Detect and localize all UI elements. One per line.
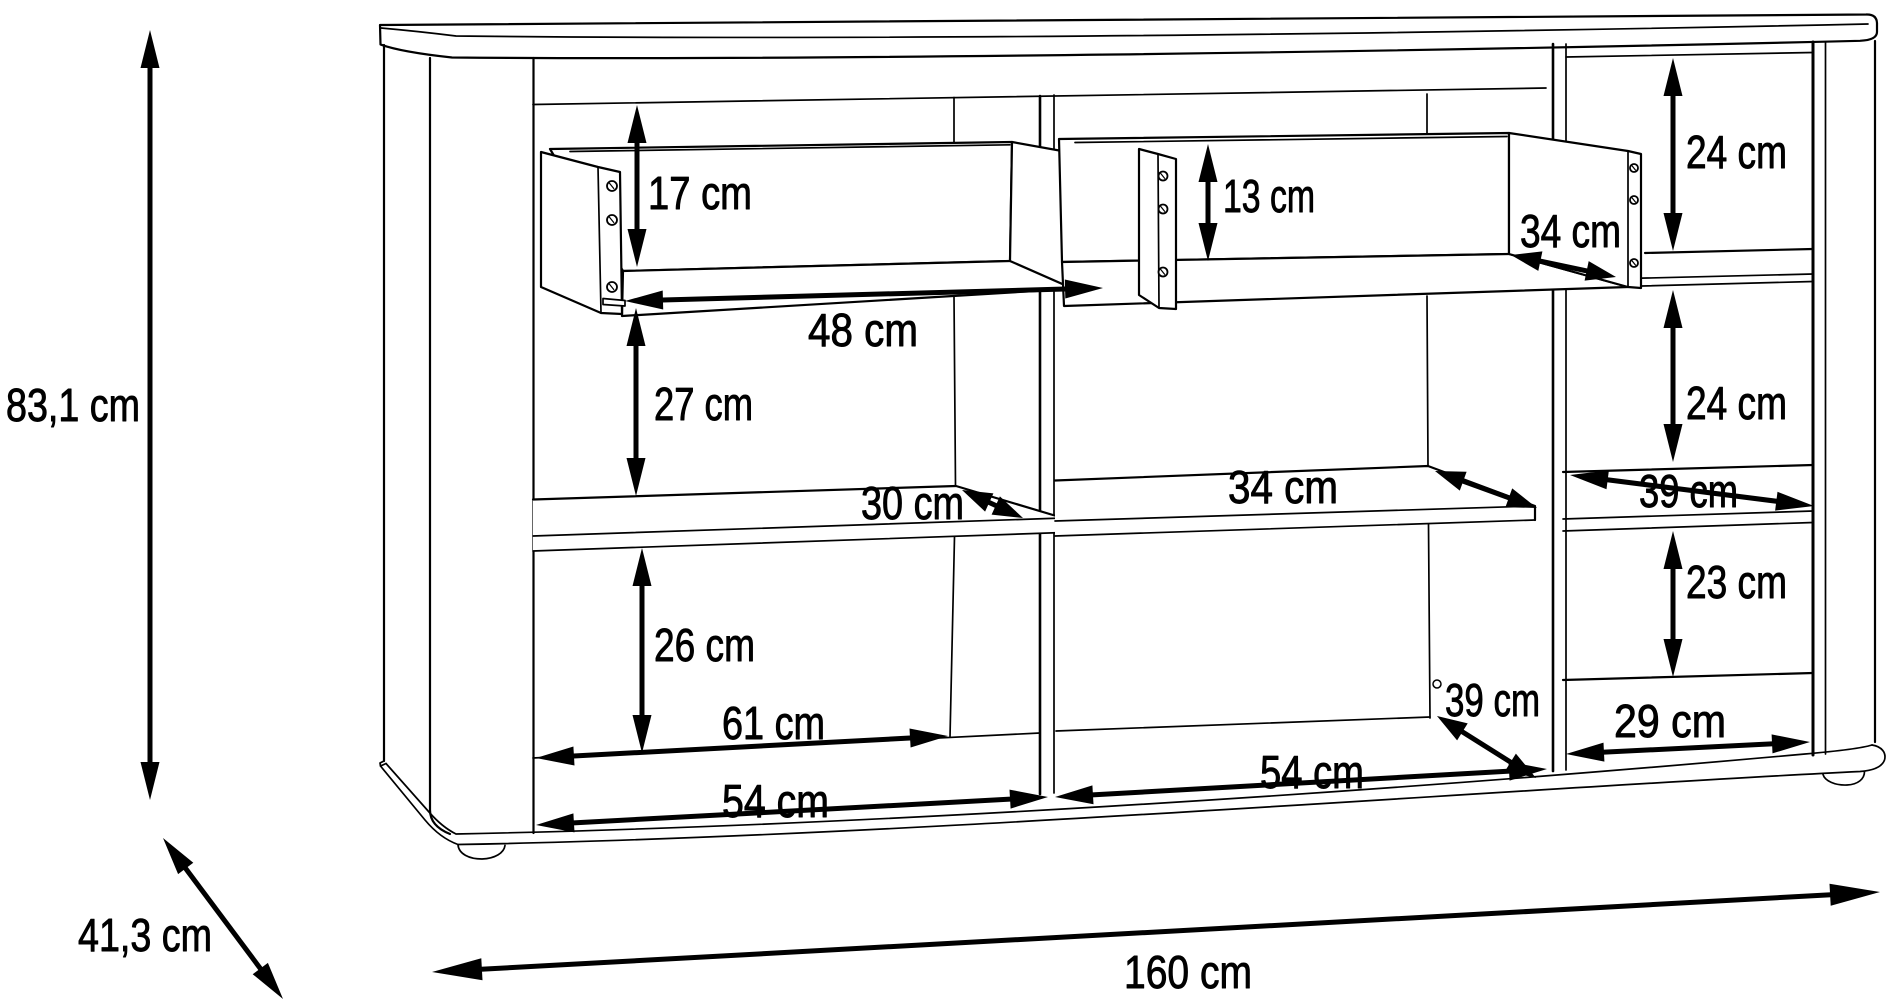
svg-text:26 cm: 26 cm xyxy=(654,619,755,671)
svg-text:41,3 cm: 41,3 cm xyxy=(78,909,212,961)
svg-text:34 cm: 34 cm xyxy=(1520,205,1621,257)
svg-text:54 cm: 54 cm xyxy=(1260,746,1364,798)
svg-text:160 cm: 160 cm xyxy=(1124,946,1252,998)
svg-text:61 cm: 61 cm xyxy=(722,697,825,749)
svg-text:24 cm: 24 cm xyxy=(1686,126,1787,178)
svg-text:48 cm: 48 cm xyxy=(808,304,918,356)
svg-text:27 cm: 27 cm xyxy=(654,378,753,430)
svg-text:83,1 cm: 83,1 cm xyxy=(6,379,140,431)
svg-text:23 cm: 23 cm xyxy=(1686,556,1787,608)
svg-text:24 cm: 24 cm xyxy=(1686,377,1787,429)
svg-text:17 cm: 17 cm xyxy=(648,167,752,219)
svg-text:29 cm: 29 cm xyxy=(1614,695,1726,747)
svg-text:39 cm: 39 cm xyxy=(1639,465,1738,517)
svg-text:13 cm: 13 cm xyxy=(1223,170,1315,222)
svg-text:39 cm: 39 cm xyxy=(1445,674,1540,726)
svg-text:34 cm: 34 cm xyxy=(1228,461,1338,513)
svg-text:54 cm: 54 cm xyxy=(722,775,829,827)
svg-text:30 cm: 30 cm xyxy=(861,477,964,529)
